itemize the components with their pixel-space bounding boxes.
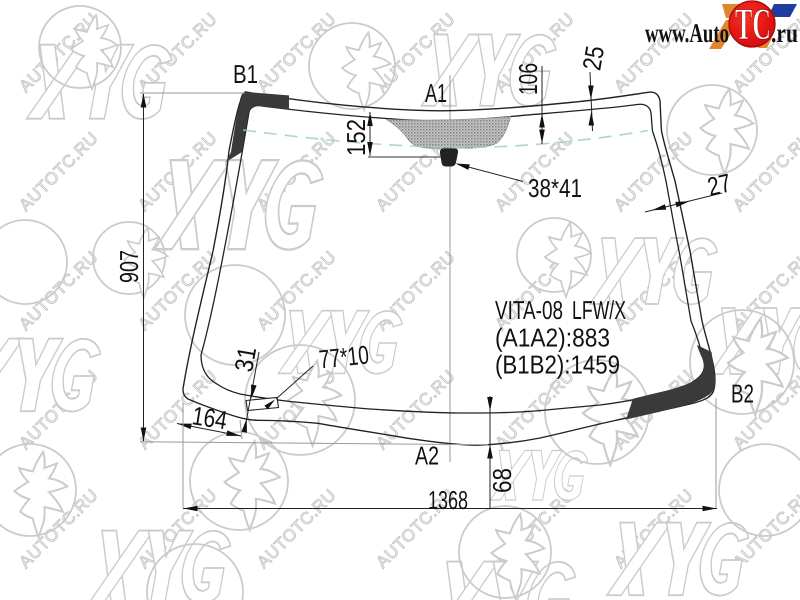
svg-text:(A1A2):883: (A1A2):883 — [495, 323, 610, 353]
svg-text:31: 31 — [228, 344, 262, 374]
svg-text:77*10: 77*10 — [317, 339, 370, 374]
svg-text:LFW/X: LFW/X — [572, 295, 626, 325]
svg-text:.ru: .ru — [771, 18, 798, 48]
svg-text:152: 152 — [341, 119, 371, 156]
svg-text:(B1B2):1459: (B1B2):1459 — [495, 350, 620, 380]
svg-text:907: 907 — [114, 250, 144, 283]
svg-text:VITA-08: VITA-08 — [495, 295, 563, 325]
svg-text:A2: A2 — [415, 441, 439, 471]
svg-text:B2: B2 — [731, 379, 754, 409]
svg-text:68: 68 — [487, 468, 517, 493]
svg-text:25: 25 — [576, 44, 610, 73]
svg-text:106: 106 — [513, 63, 543, 95]
svg-text:A1: A1 — [425, 78, 447, 108]
svg-text:164: 164 — [190, 400, 229, 435]
svg-text:www.Auto: www.Auto — [645, 18, 729, 48]
svg-text:38*41: 38*41 — [528, 173, 582, 203]
svg-text:B1: B1 — [233, 59, 258, 89]
svg-text:1368: 1368 — [428, 485, 468, 515]
svg-text:TC: TC — [735, 0, 771, 49]
